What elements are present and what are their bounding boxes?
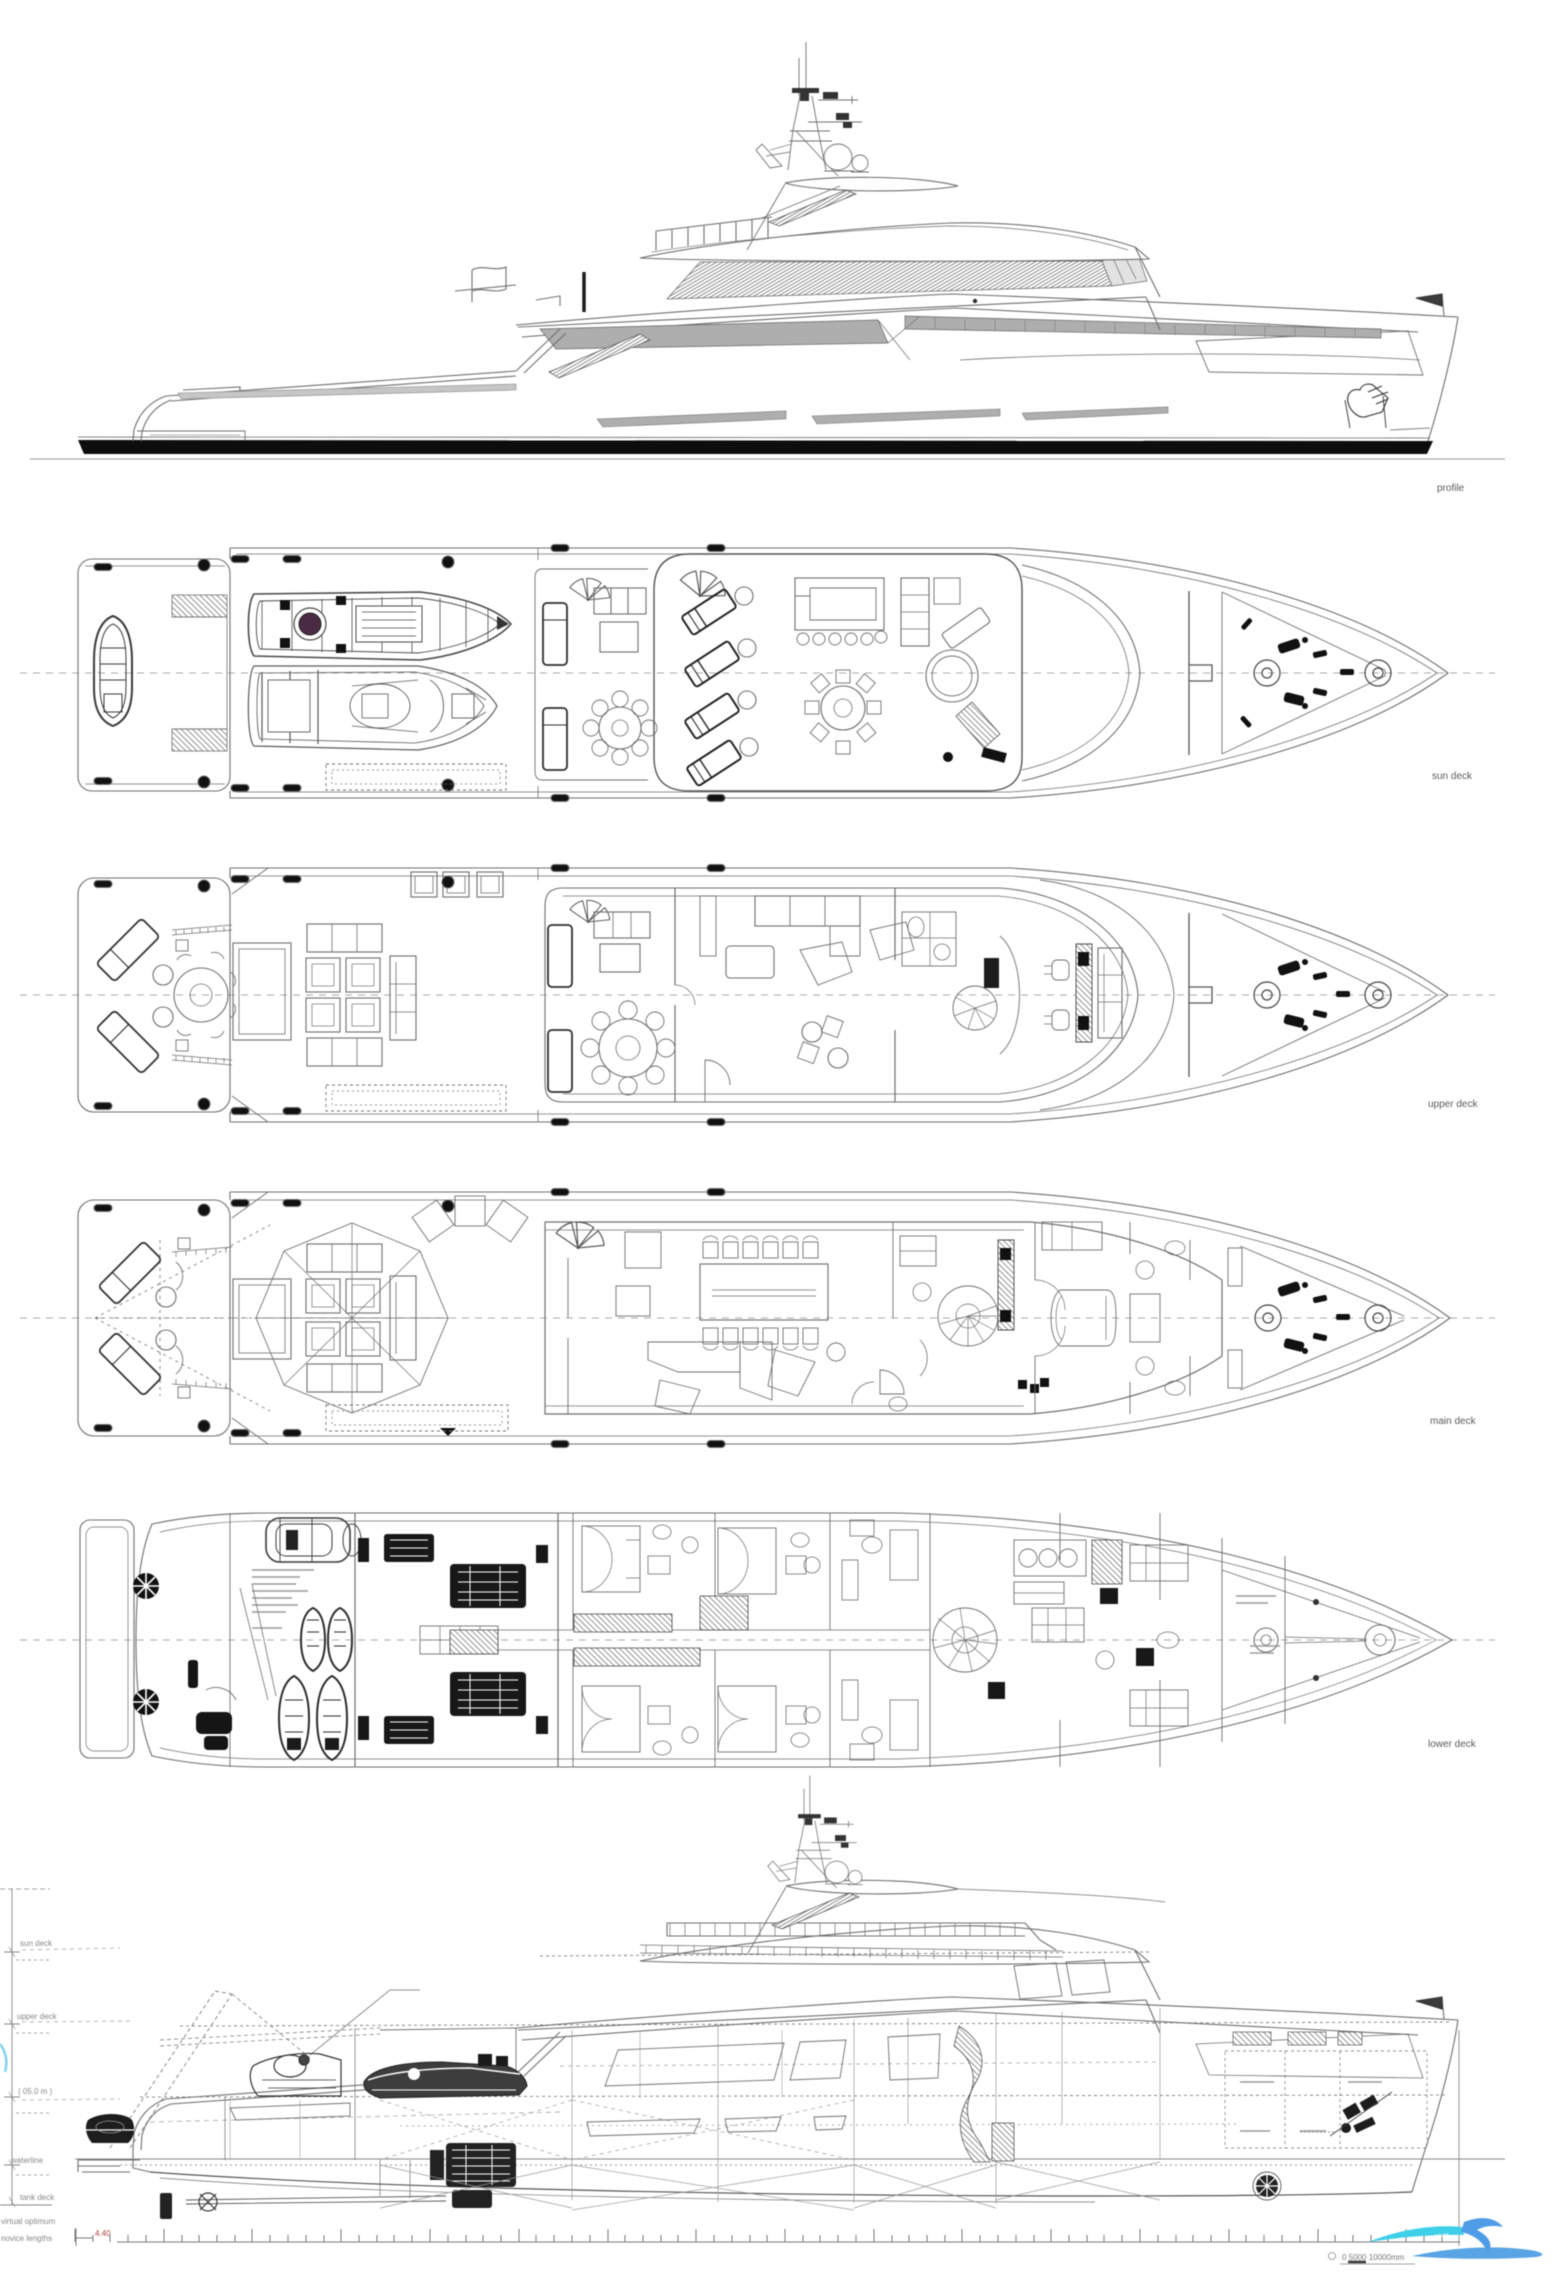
svg-text:4.40: 4.40 [95, 2229, 111, 2238]
svg-text:( 05.0 m ): ( 05.0 m ) [18, 2087, 53, 2096]
svg-text:sun deck: sun deck [20, 1939, 53, 1948]
svg-text:profile: profile [1437, 483, 1465, 494]
svg-text:novice lengths: novice lengths [1, 2234, 52, 2243]
svg-text:com: com [1433, 2230, 1449, 2241]
svg-text:main deck: main deck [1430, 1416, 1477, 1427]
svg-text:upper deck: upper deck [1428, 1099, 1478, 1110]
svg-text:virtual optimum: virtual optimum [1, 2217, 56, 2226]
svg-text:0 5000 10000mm: 0 5000 10000mm [1342, 2253, 1405, 2262]
svg-text:sun deck: sun deck [1432, 771, 1473, 782]
svg-text:waterline: waterline [10, 2156, 44, 2165]
svg-text:tank deck: tank deck [20, 2193, 55, 2202]
svg-text:lower deck: lower deck [1428, 1739, 1477, 1750]
svg-text:upper deck: upper deck [17, 2012, 58, 2021]
